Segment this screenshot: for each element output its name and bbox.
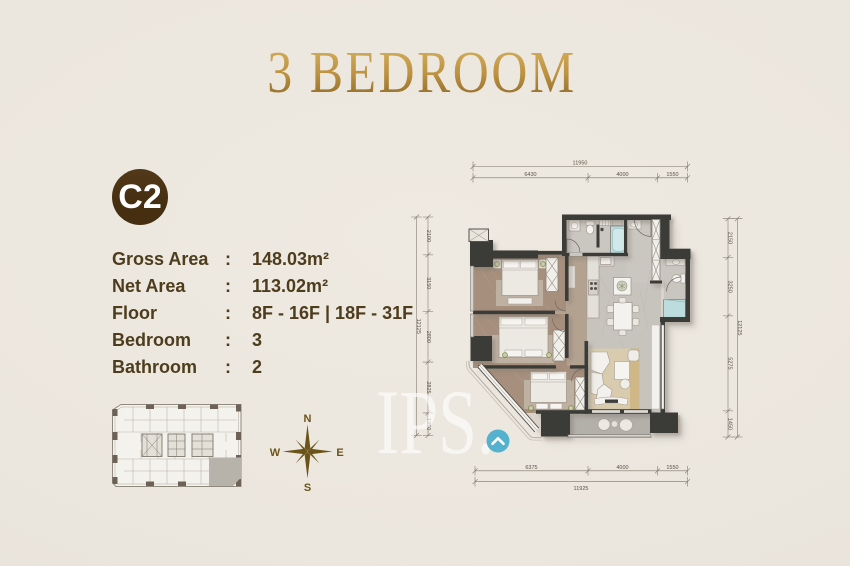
svg-text:6430: 6430 <box>524 172 536 178</box>
svg-text:11925: 11925 <box>574 486 589 492</box>
svg-text:2150: 2150 <box>727 232 733 244</box>
svg-text:4000: 4000 <box>616 465 628 471</box>
svg-text:2800: 2800 <box>425 331 431 343</box>
svg-text:4000: 4000 <box>616 172 628 178</box>
svg-text:12125: 12125 <box>415 319 421 334</box>
svg-text:5275: 5275 <box>727 357 733 369</box>
svg-text:3150: 3150 <box>425 277 431 289</box>
svg-text:12125: 12125 <box>736 320 742 335</box>
svg-text:W: W <box>270 447 281 459</box>
svg-text:N: N <box>304 413 312 425</box>
svg-text:S: S <box>304 482 311 494</box>
svg-text:1550: 1550 <box>666 172 678 178</box>
svg-text:11950: 11950 <box>573 161 588 167</box>
svg-text:1550: 1550 <box>666 465 678 471</box>
svg-text:2100: 2100 <box>425 230 431 242</box>
svg-text:E: E <box>336 447 343 459</box>
svg-text:3250: 3250 <box>727 281 733 293</box>
svg-text:1450: 1450 <box>727 418 733 430</box>
